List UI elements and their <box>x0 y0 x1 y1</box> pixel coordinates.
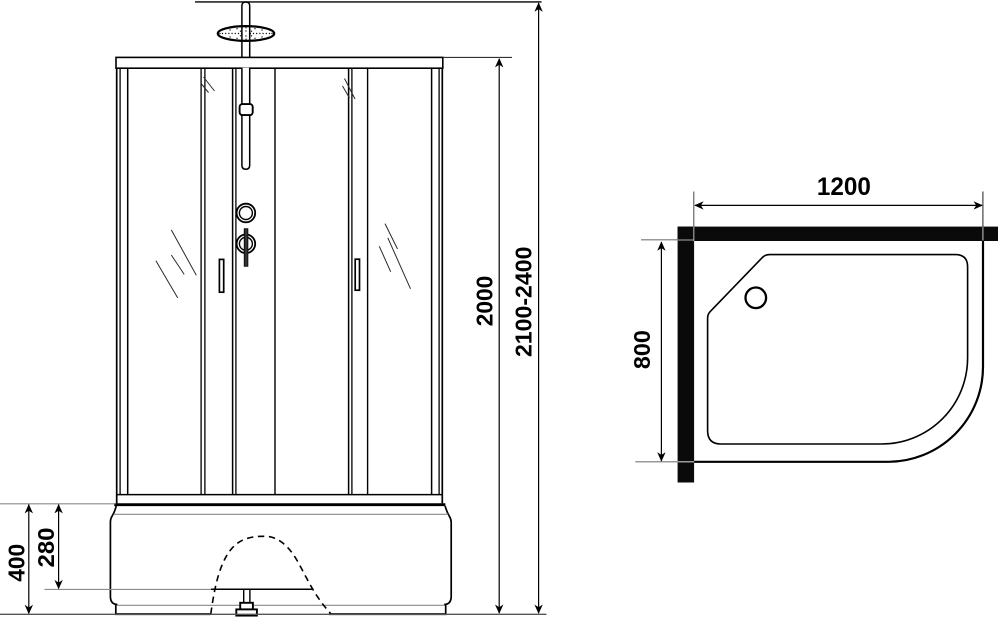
svg-text:280: 280 <box>33 528 59 568</box>
svg-text:2000: 2000 <box>472 276 498 327</box>
svg-text:2100-2400: 2100-2400 <box>511 247 537 358</box>
svg-text:800: 800 <box>629 330 655 369</box>
svg-text:1200: 1200 <box>817 173 871 201</box>
svg-text:400: 400 <box>4 544 30 582</box>
